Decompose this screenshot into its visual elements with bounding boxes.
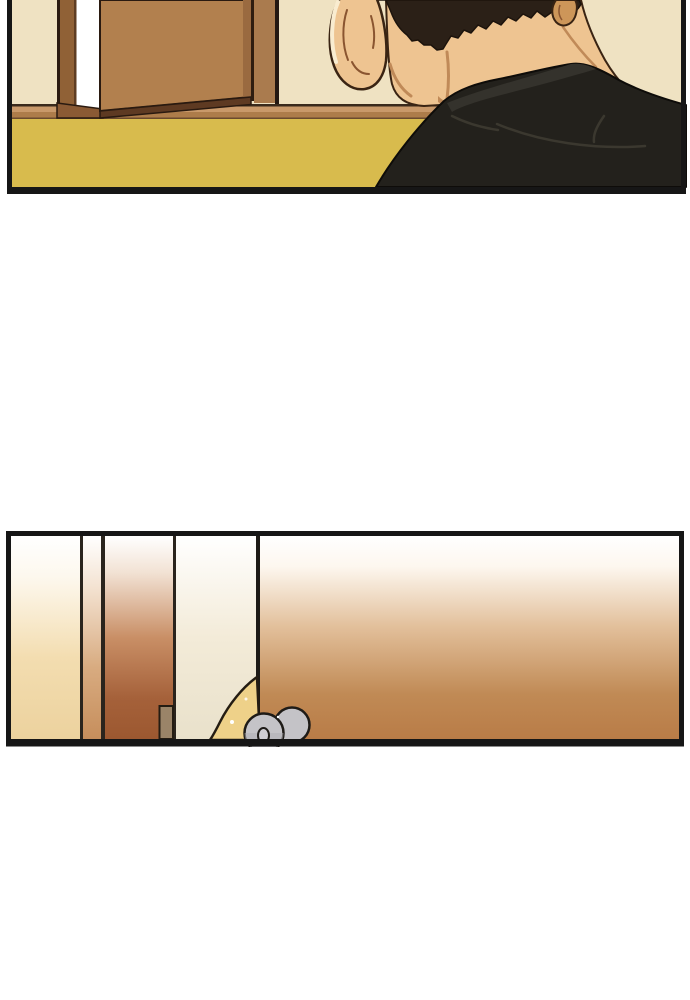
frame-strip-tan: [83, 536, 101, 739]
comic-panel-bottom: [0, 528, 690, 747]
panel2-border-top: [6, 531, 684, 536]
right-ear: [552, 0, 577, 25]
frame-strip: [60, 0, 76, 108]
panel-border-left: [7, 0, 12, 194]
panel-border-right: [681, 0, 686, 194]
door-jamb: [251, 0, 279, 104]
door-stopper: [160, 706, 174, 739]
panel2-border-right: [679, 531, 684, 746]
panel-border-bottom: [7, 187, 686, 194]
frame-outline-strip: [57, 0, 60, 112]
doorway-light-gap: [77, 0, 101, 110]
jamb-outer-line: [275, 0, 279, 104]
doorknob-highlight-speck: [277, 716, 279, 718]
frame-inner-edge: [74, 0, 77, 108]
strip-divider-1: [80, 536, 83, 739]
door-frame: [57, 0, 103, 118]
jamb-dark-line: [251, 0, 254, 101]
wall-strip-cream: [11, 536, 80, 739]
nape-shadow-line: [447, 52, 449, 99]
door-panel-edge-shade: [243, 0, 251, 98]
wedge-highlight-speck: [245, 698, 248, 701]
left-ear-shape: [330, 0, 387, 89]
strip-divider-2: [101, 536, 105, 739]
comic-page: [0, 0, 690, 1000]
panel2-border-bottom: [6, 739, 684, 747]
open-door: [100, 0, 251, 118]
jamb-strip: [254, 0, 275, 103]
comic-panel-top: [0, 0, 690, 194]
door-panel: [100, 0, 251, 111]
left-ear: [330, 0, 387, 89]
wedge-highlight-dot: [230, 720, 234, 724]
panel2-border-left: [6, 531, 11, 746]
door-face: [260, 536, 679, 739]
